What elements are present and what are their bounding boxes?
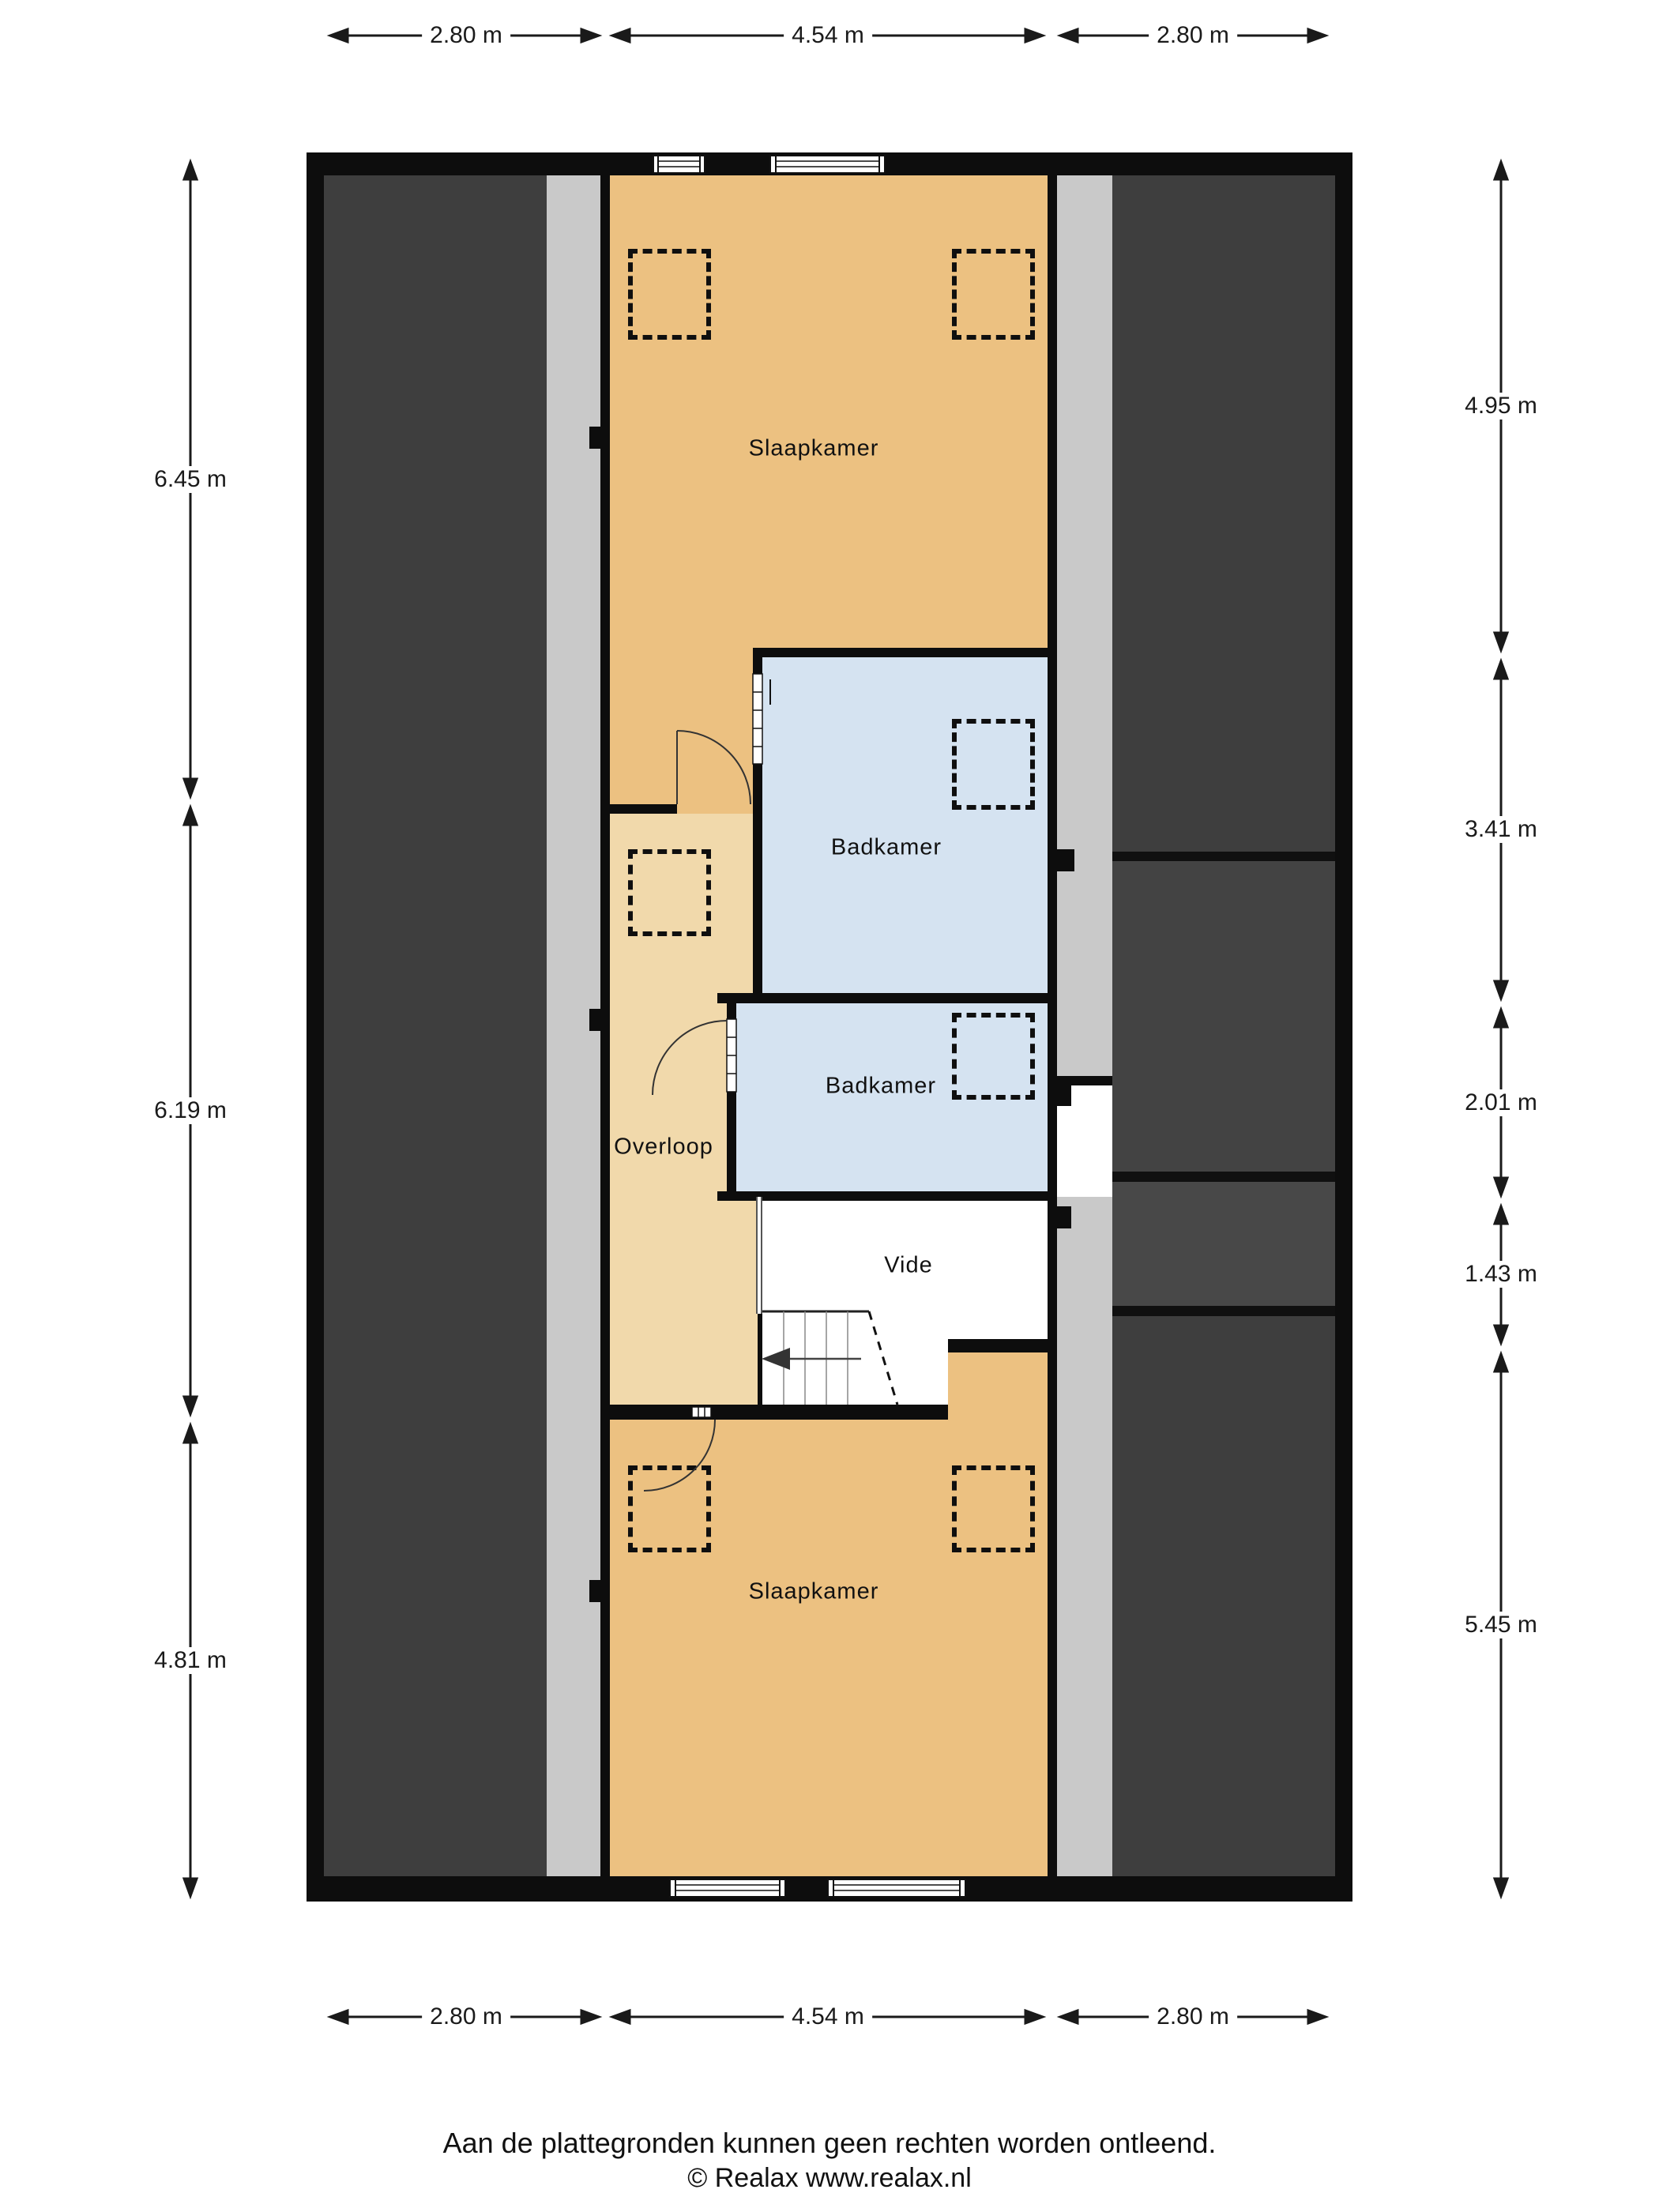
wall-badkamer2-left-upper [727, 1003, 736, 1019]
skylight-slaapkamer-top-left [628, 249, 711, 340]
roof-divider-wall-2 [1112, 1172, 1335, 1182]
dimension-label-top-3: 2.80 m [1149, 22, 1237, 49]
dimension-label-right-2: 3.41 m [1457, 816, 1545, 843]
wall-between-badkamers [717, 993, 1048, 1003]
room-slaapkamer-bottom-ext [948, 1352, 1048, 1420]
roof-area-right-4 [1112, 1316, 1335, 1876]
skylight-slaapkamer-bottom-right [952, 1465, 1035, 1552]
interior-wall-left [600, 175, 610, 1876]
wall-stub [1057, 849, 1074, 871]
dimension-label-bottom-2: 4.54 m [784, 2003, 872, 2030]
room-overloop-mid [610, 1003, 727, 1191]
wall-overloop-bottom-right [711, 1405, 948, 1420]
wall-stub [589, 1580, 600, 1602]
dimension-label-right-1: 4.95 m [1457, 393, 1545, 419]
skylight-badkamer-2 [952, 1013, 1035, 1100]
dimension-label-left-3: 4.81 m [146, 1647, 235, 1674]
dimension-label-top-1: 2.80 m [422, 22, 510, 49]
dimension-label-left-1: 6.45 m [146, 466, 235, 493]
floor-plan: Slaapkamer Badkamer Badkamer Overloop Vi… [0, 0, 1659, 2212]
room-overloop-lower [610, 1191, 758, 1405]
dimension-label-right-5: 5.45 m [1457, 1612, 1545, 1638]
roof-area-right-2 [1112, 861, 1335, 1172]
wall-stub [1057, 1206, 1071, 1228]
skylight-overloop [628, 849, 711, 936]
room-label-badkamer-1: Badkamer [831, 835, 942, 861]
room-label-overloop: Overloop [614, 1134, 713, 1161]
footer-disclaimer: Aan de plattegronden kunnen geen rechten… [0, 2127, 1659, 2160]
roof-divider-wall-3 [1112, 1306, 1335, 1316]
room-label-badkamer-2: Badkamer [826, 1074, 936, 1100]
knee-wall-strip-right-top [1057, 175, 1112, 1076]
dimension-label-right-3: 2.01 m [1457, 1089, 1545, 1116]
dimension-label-top-2: 4.54 m [784, 22, 872, 49]
wall-badkamer1-top [753, 648, 1048, 657]
roof-divider-wall-1 [1112, 852, 1335, 861]
wall-stub [1057, 1085, 1071, 1106]
dimension-label-bottom-3: 2.80 m [1149, 2003, 1237, 2030]
strip-spur-wall [1057, 1076, 1112, 1085]
room-badkamer-1 [762, 657, 1048, 993]
wall-badkamer1-left [753, 657, 762, 993]
roof-area-right-1 [1112, 175, 1335, 852]
room-label-slaapkamer-bottom: Slaapkamer [749, 1579, 879, 1605]
wall-badkamer2-bottom [717, 1191, 1057, 1201]
dimension-label-right-4: 1.43 m [1457, 1261, 1545, 1288]
room-slaapkamer-top [610, 175, 1048, 657]
room-slaapkamer-top-strip [610, 657, 753, 814]
wall-overloop-bottom-left [610, 1405, 644, 1420]
skylight-slaapkamer-bottom-left [628, 1465, 711, 1552]
wall-stub [589, 1009, 600, 1031]
room-overloop-mid-sliver [610, 993, 717, 1003]
vide-railing [756, 1197, 762, 1314]
room-label-slaapkamer-top: Slaapkamer [749, 436, 879, 462]
wall-slaapkamer-overloop [610, 804, 677, 814]
knee-wall-strip-right-bottom [1057, 1197, 1112, 1876]
room-vide-stairwell [762, 1339, 948, 1405]
wall-badkamer2-left-lower [727, 1092, 736, 1191]
roof-area-right-3 [1112, 1182, 1335, 1306]
dimension-label-left-2: 6.19 m [146, 1097, 235, 1124]
skylight-badkamer-1 [952, 719, 1035, 810]
wall-vide-bottom [948, 1339, 1057, 1352]
skylight-slaapkamer-top-right [952, 249, 1035, 340]
roof-area-left [324, 175, 547, 1876]
footer-copyright: © Realax www.realax.nl [0, 2163, 1659, 2194]
wall-stub [589, 427, 600, 449]
room-label-vide: Vide [884, 1253, 933, 1279]
dimension-label-bottom-1: 2.80 m [422, 2003, 510, 2030]
interior-wall-right [1048, 175, 1057, 1876]
